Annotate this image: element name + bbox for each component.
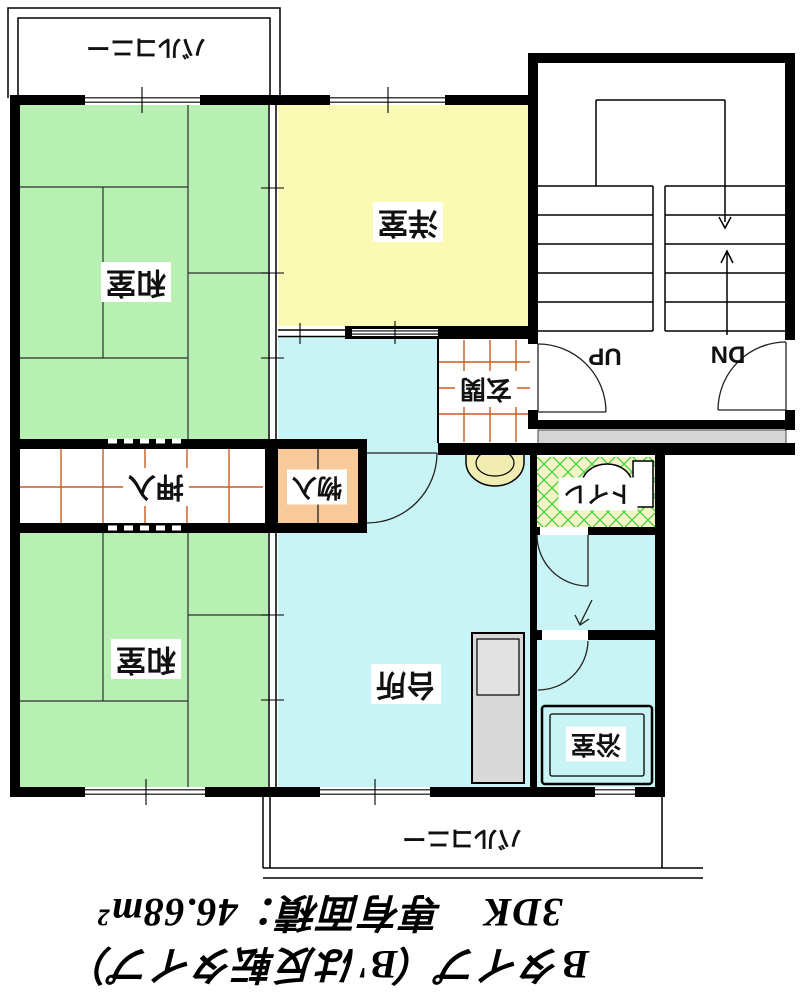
caption-type-line: Bタイプ（B'は反転タイプ） <box>0 938 660 990</box>
wall-segment <box>528 420 795 429</box>
oshiire-label: 押入 <box>128 472 184 504</box>
caption: 3DK 専有面積：46.68m² Bタイプ（B'は反転タイプ） <box>0 886 660 990</box>
yoshitsu-label: 洋室 <box>378 206 438 240</box>
kitchen-sink-icon <box>477 639 519 695</box>
wall-segment <box>358 439 367 533</box>
wall-segment <box>528 53 795 63</box>
monoire-label: 物入 <box>292 473 342 501</box>
washitsu-bottom-label: 和室 <box>116 643 176 677</box>
toilet-label: トイレ <box>564 481 633 507</box>
room-washroom <box>537 535 655 630</box>
wall-segment <box>655 443 665 797</box>
floor-plan-drawing: バルコニー和室洋室玄関押入物入トイレ和室台所浴室バルコニーUPDN <box>0 0 807 882</box>
wall-segment <box>265 439 278 533</box>
wall-segment <box>528 63 538 344</box>
genkan-label: 玄関 <box>460 374 512 404</box>
door-gap <box>540 527 588 535</box>
wall-segment <box>530 455 537 787</box>
wall-segment <box>10 439 367 449</box>
genkan-edge-line <box>437 339 439 443</box>
caption-size-line: 3DK 専有面積：46.68m² <box>0 886 660 938</box>
stairs-up-label: UP <box>588 343 621 370</box>
washitsu-top-label: 和室 <box>106 266 166 300</box>
balcony-top-label: バルコニー <box>86 34 206 61</box>
window-icon <box>595 787 635 797</box>
wall-segment <box>438 443 795 455</box>
stairs-dn-label: DN <box>711 341 746 368</box>
floor-plan-page: バルコニー和室洋室玄関押入物入トイレ和室台所浴室バルコニーUPDN 3DK 専有… <box>0 0 807 1000</box>
window-icon <box>85 787 205 797</box>
daidokoro-label: 台所 <box>376 668 436 702</box>
wall-segment <box>10 523 367 533</box>
bath-label: 浴室 <box>571 730 621 759</box>
balcony-bottom-label: バルコニー <box>402 825 522 852</box>
door-gap <box>542 630 588 640</box>
corridor-threshold-strip <box>538 430 786 444</box>
